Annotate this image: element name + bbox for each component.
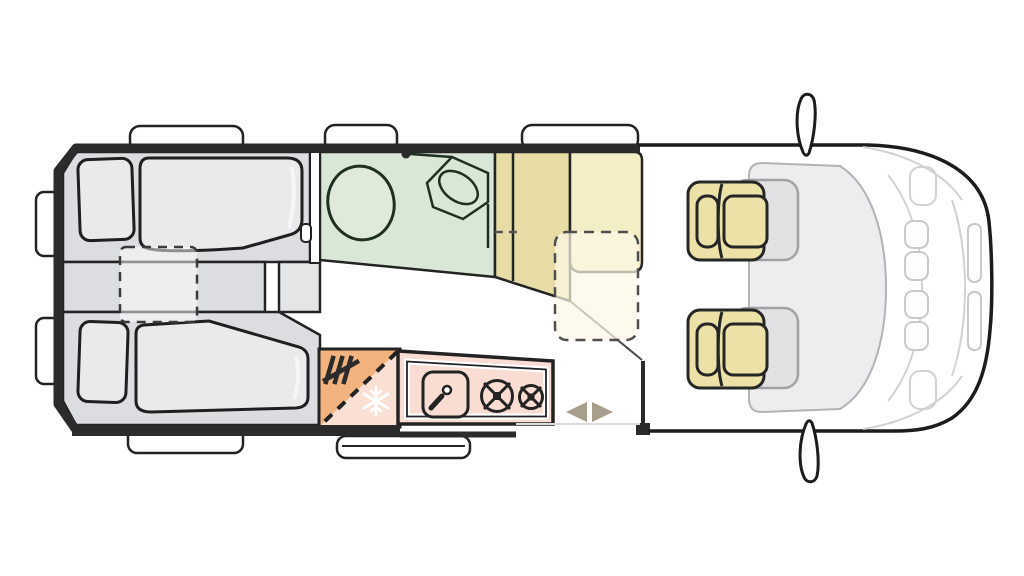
headlight	[905, 291, 928, 318]
headlight	[905, 322, 928, 350]
pillow-bottom-bed	[78, 321, 129, 403]
bathroom-door	[310, 152, 320, 263]
bed-platform-strip	[279, 262, 320, 312]
campervan-floorplan	[0, 0, 1024, 576]
side-mirror-top	[797, 94, 815, 155]
bed-filler-cushion-dashed	[120, 247, 197, 322]
mattress-top-bed	[140, 158, 302, 251]
arrow-right-icon	[592, 402, 613, 422]
seat-cushion	[724, 324, 767, 375]
folding-table-dashed	[555, 232, 638, 340]
swivel-seat-bottom	[688, 308, 798, 388]
entry-door-arrows	[566, 402, 613, 422]
headlights	[905, 221, 981, 350]
front-grille-strip	[968, 292, 981, 350]
front-grille-strip	[968, 224, 981, 282]
headlight	[905, 221, 928, 248]
kitchen-zone	[398, 351, 553, 424]
rear-bedroom-zone	[63, 152, 320, 425]
pillow-top-bed	[78, 158, 135, 241]
arrow-left-icon	[566, 402, 587, 422]
table-zone	[555, 232, 642, 360]
faucet-icon	[443, 386, 451, 394]
side-mirror-bottom	[800, 421, 818, 482]
bathroom-door-handle	[301, 224, 311, 242]
floorplan-canvas	[0, 0, 1024, 576]
seat-cushion	[724, 196, 767, 247]
headlight	[905, 252, 928, 280]
swivel-seat-top	[688, 180, 798, 260]
cab-zone	[638, 94, 992, 482]
bathroom-zone	[301, 150, 495, 278]
fridge-unit	[319, 349, 400, 427]
